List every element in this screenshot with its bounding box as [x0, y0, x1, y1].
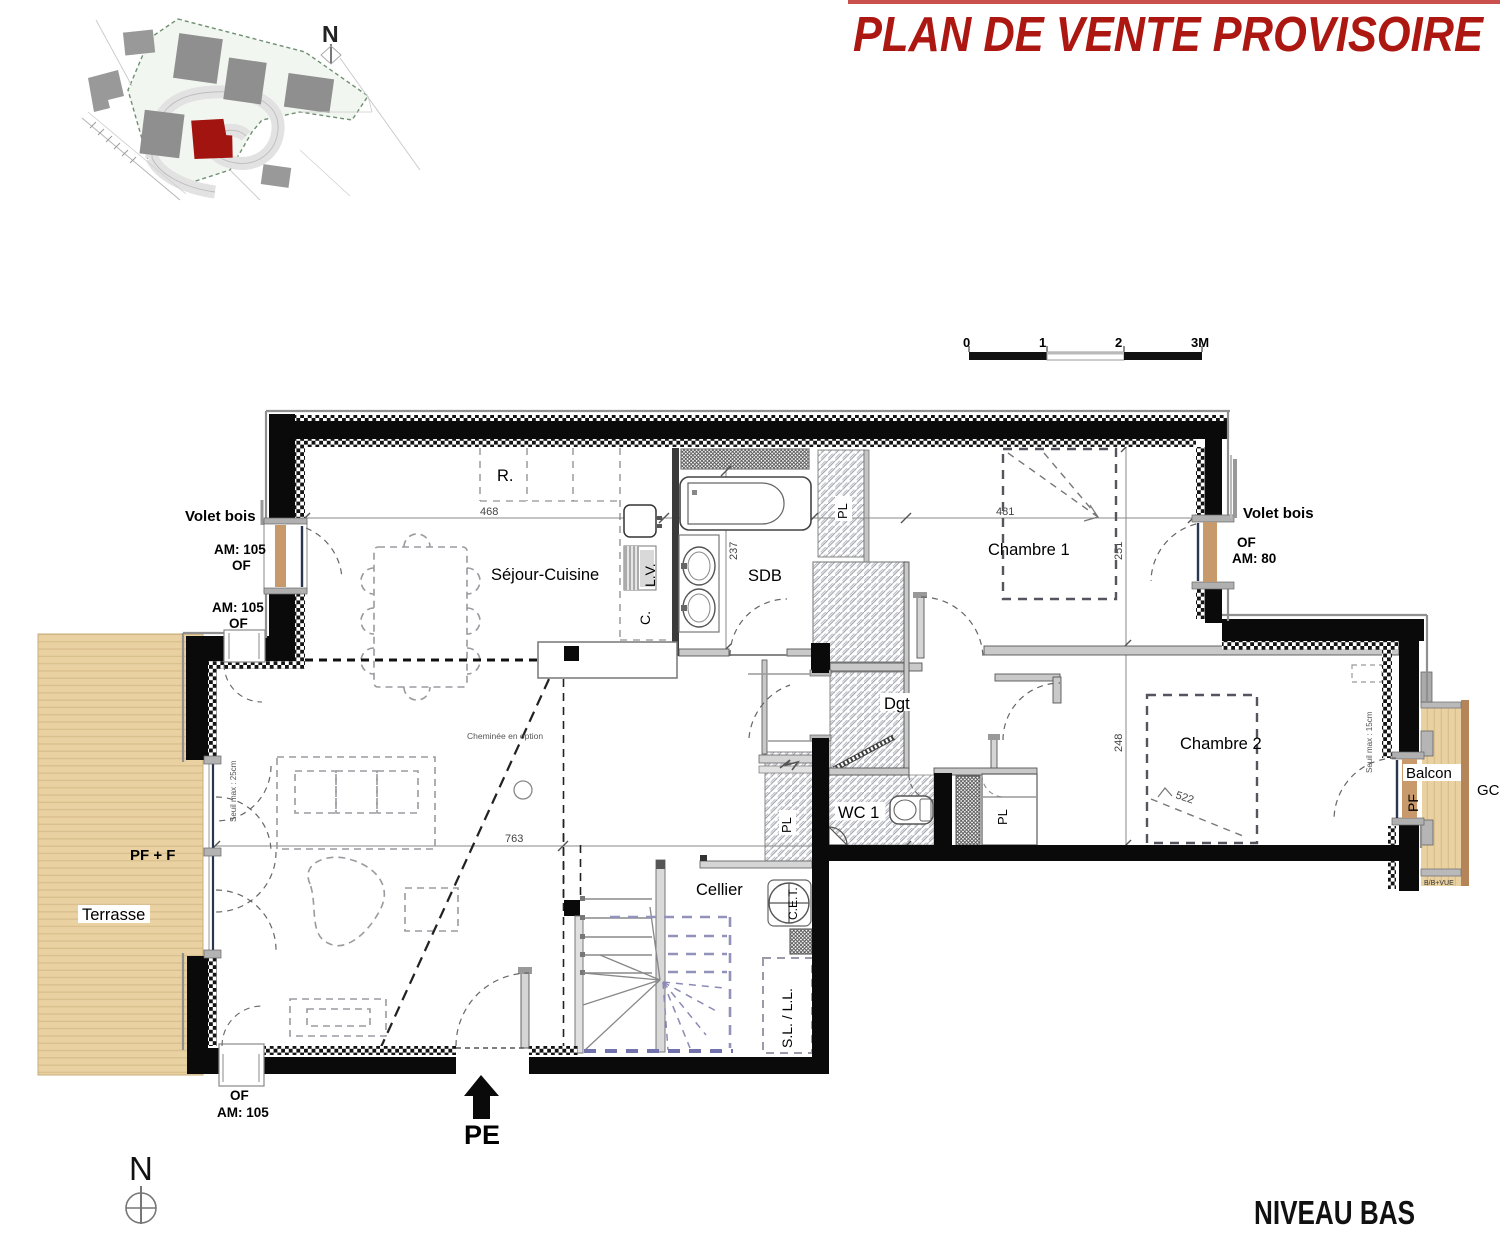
svg-text:Cheminée en option: Cheminée en option [467, 731, 543, 741]
svg-text:AM: 105: AM: 105 [212, 600, 264, 615]
svg-text:Seuil max : 25cm: Seuil max : 25cm [229, 760, 238, 822]
svg-text:Balcon: Balcon [1406, 765, 1452, 782]
svg-text:PF + F: PF + F [130, 847, 175, 864]
svg-text:WC 1: WC 1 [838, 804, 879, 822]
svg-text:OF: OF [229, 616, 248, 631]
svg-text:Cellier: Cellier [696, 881, 743, 899]
svg-text:Chambre 1: Chambre 1 [988, 541, 1070, 559]
svg-text:S.L. / L.L.: S.L. / L.L. [779, 988, 795, 1048]
svg-text:B/B+VUE: B/B+VUE [1424, 880, 1454, 887]
svg-text:237: 237 [728, 542, 740, 560]
svg-text:Seuil max : 15cm: Seuil max : 15cm [1365, 711, 1374, 773]
svg-text:Dgt: Dgt [884, 695, 910, 713]
svg-text:248: 248 [1113, 734, 1125, 752]
svg-text:1: 1 [1039, 335, 1046, 350]
svg-text:R.: R. [497, 467, 514, 485]
svg-text:Terrasse: Terrasse [82, 906, 145, 924]
svg-text:OF: OF [1237, 535, 1256, 550]
svg-text:AM: 105: AM: 105 [214, 542, 266, 557]
svg-text:GC: GC [1477, 782, 1500, 799]
svg-text:PE: PE [464, 1120, 500, 1150]
svg-text:L.V.: L.V. [642, 563, 658, 587]
svg-text:N: N [322, 21, 339, 47]
svg-text:OF: OF [230, 1088, 249, 1103]
svg-text:PL: PL [835, 503, 850, 519]
svg-text:N: N [129, 1150, 153, 1187]
svg-text:Volet bois: Volet bois [185, 508, 256, 525]
svg-text:NIVEAU BAS: NIVEAU BAS [1254, 1194, 1415, 1231]
svg-text:PL: PL [779, 817, 794, 833]
svg-text:AM: 105: AM: 105 [217, 1105, 269, 1120]
svg-text:Volet bois: Volet bois [1243, 505, 1314, 522]
svg-text:OF: OF [232, 558, 251, 573]
svg-text:Séjour-Cuisine: Séjour-Cuisine [491, 566, 599, 584]
svg-text:C.E.T.: C.E.T. [786, 887, 800, 920]
svg-text:SDB: SDB [748, 567, 782, 585]
svg-text:PF: PF [1405, 794, 1421, 812]
svg-text:Chambre 2: Chambre 2 [1180, 735, 1262, 753]
svg-text:PLAN DE VENTE PROVISOIRE: PLAN DE VENTE PROVISOIRE [853, 8, 1484, 62]
svg-text:763: 763 [505, 833, 523, 845]
svg-text:3M: 3M [1191, 335, 1209, 350]
svg-text:481: 481 [996, 506, 1014, 518]
svg-text:2: 2 [1115, 335, 1122, 350]
svg-text:C.: C. [637, 611, 653, 625]
svg-text:AM: 80: AM: 80 [1232, 551, 1276, 566]
svg-text:468: 468 [480, 506, 498, 518]
svg-text:PL: PL [995, 809, 1010, 825]
